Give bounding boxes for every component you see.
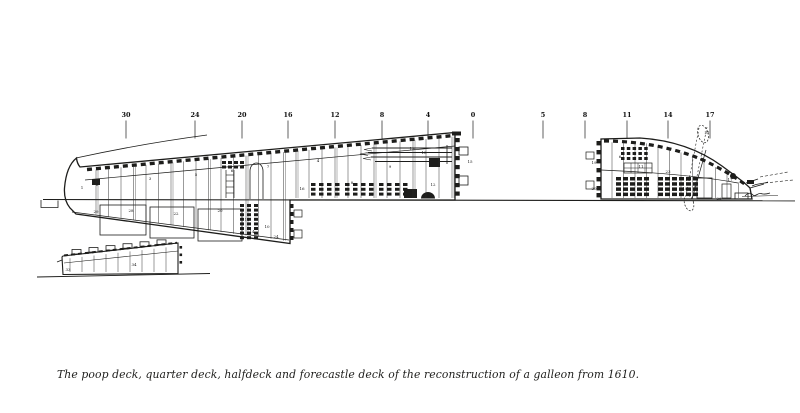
poop-deck-section	[37, 240, 210, 277]
station-label: 5	[541, 111, 546, 119]
galleon-deck-drawing: 302420161284058111417	[0, 0, 800, 413]
grating-cell	[644, 187, 649, 191]
station-label: 24	[190, 111, 200, 119]
grating-cell	[361, 188, 366, 191]
grating-cell	[247, 213, 251, 216]
grating-cell	[665, 193, 670, 197]
grating-cell	[638, 147, 642, 150]
grating-cell	[637, 182, 642, 186]
grating-cell	[335, 183, 340, 186]
beam-end-tooth	[290, 212, 294, 216]
bowsprit-sketch-lines	[760, 172, 793, 183]
grating-cell	[658, 187, 663, 191]
edge-tick	[180, 261, 183, 264]
beam-block	[294, 210, 302, 217]
beam-end-tooth	[456, 183, 460, 187]
grating-cell	[379, 188, 384, 191]
beam-block	[459, 176, 468, 185]
grating-cell	[240, 209, 244, 212]
grating-cell	[254, 227, 258, 230]
beam-block	[294, 230, 302, 238]
part-number-label: 18	[682, 186, 688, 191]
dark-locker	[429, 158, 440, 167]
part-number-label: 23	[665, 169, 671, 174]
grating-cell	[633, 147, 637, 150]
part-number-label: 10	[685, 177, 691, 182]
part-number-label: 6	[619, 154, 622, 159]
edge-cap	[452, 132, 461, 136]
grating-cell	[637, 177, 642, 181]
grating-cell	[616, 187, 621, 191]
beam-end-tooth	[456, 165, 460, 169]
grating-cell	[247, 209, 251, 212]
grating-cell	[353, 188, 358, 191]
grating-cell	[623, 193, 628, 197]
beam-end-tooth	[597, 177, 601, 181]
grating-cell	[311, 188, 316, 191]
grating-cell	[633, 152, 637, 155]
grating-cell	[234, 161, 238, 164]
part-number-label: 14	[249, 229, 255, 234]
part-number-label: 15	[467, 159, 473, 164]
grating-cell	[693, 193, 698, 197]
grating-cell	[403, 193, 408, 196]
grating-cell	[644, 182, 649, 186]
station-label: 11	[622, 111, 631, 119]
grating-cell	[672, 187, 677, 191]
beam-end-tooth	[456, 147, 460, 151]
grating-cell	[403, 188, 408, 191]
part-number-label: 26	[368, 192, 374, 197]
station-label: 0	[471, 111, 476, 119]
forecastle-section	[586, 124, 793, 212]
grating-cell	[403, 183, 408, 186]
beam-end-tooth	[290, 236, 294, 240]
grating-cell	[345, 193, 350, 196]
grating-cell	[379, 183, 384, 186]
grating-cell	[627, 147, 631, 150]
grating-cell	[693, 187, 698, 191]
arched-door	[250, 163, 263, 199]
grating-cell	[228, 161, 232, 164]
grating-cell	[395, 188, 400, 191]
grating-cell	[637, 193, 642, 197]
part-number-label: 2	[96, 182, 99, 187]
station-label: 8	[583, 111, 588, 119]
grating-cell	[658, 193, 663, 197]
grating-cell	[240, 161, 244, 164]
grating-cell	[254, 209, 258, 212]
station-label: 14	[663, 111, 673, 119]
grating-cell	[623, 177, 628, 181]
station-label: 16	[283, 111, 293, 119]
part-number-label: 1	[81, 185, 84, 190]
part-number-label: 4	[317, 158, 320, 163]
part-number-label: 34	[131, 262, 137, 267]
grating-cell	[240, 204, 244, 207]
grating-cell	[644, 193, 649, 197]
grating-cell	[693, 177, 698, 181]
grating-cell	[254, 232, 258, 235]
grating-cell	[621, 157, 625, 160]
grating-cell	[644, 157, 648, 160]
grating-cell	[327, 188, 332, 191]
door	[697, 178, 712, 198]
grating-cell	[672, 182, 677, 186]
station-label: 20	[237, 111, 247, 119]
station-label: 4	[426, 111, 431, 119]
edge-tick	[180, 254, 183, 257]
grating-cell	[240, 236, 244, 239]
grating-cell	[254, 222, 258, 225]
part-number-label: 33	[65, 267, 71, 272]
part-number-label: 29	[93, 209, 99, 214]
grating-cell	[319, 188, 324, 191]
grating-cell	[319, 193, 324, 196]
part-number-label: 26	[716, 196, 722, 201]
grating-cell	[633, 157, 637, 160]
beam-end-tooth	[597, 186, 601, 190]
grating-cell	[638, 157, 642, 160]
grating-cell	[644, 152, 648, 155]
grating-cell	[353, 183, 358, 186]
grating-cell	[240, 218, 244, 221]
beakhead	[730, 172, 793, 188]
beam-end-tooth	[456, 174, 460, 178]
grating-cell	[345, 188, 350, 191]
part-number-label: 22	[173, 211, 179, 216]
cabin-box	[150, 207, 194, 238]
grating-cell	[311, 193, 316, 196]
grating-cell	[319, 183, 324, 186]
grating-cell	[369, 188, 374, 191]
station-label: 30	[121, 111, 131, 119]
beam-block	[586, 152, 594, 159]
artist-signature-mark	[742, 193, 778, 197]
beam-block	[459, 147, 468, 155]
part-number-label: 21	[704, 130, 709, 135]
beam-end-tooth	[290, 204, 294, 208]
grating-cell	[616, 182, 621, 186]
grating-cell	[247, 222, 251, 225]
grating-cell	[665, 187, 670, 191]
part-number-label: 28	[128, 208, 134, 213]
beam-end-tooth	[597, 193, 601, 197]
grating-cell	[311, 183, 316, 186]
part-number-label: 19	[591, 160, 597, 165]
grating-cell	[345, 183, 350, 186]
part-number-label: 8	[351, 180, 354, 185]
part-number-label: 11	[244, 217, 249, 222]
part-number-label: 18	[421, 150, 427, 155]
grating-cell	[637, 187, 642, 191]
part-number-label: 7	[267, 164, 270, 169]
grating-cell	[387, 188, 392, 191]
grating-cell	[621, 152, 625, 155]
part-number-label: 9	[389, 164, 392, 169]
edge-tick	[180, 246, 183, 249]
grating-cell	[254, 218, 258, 221]
grating-cell	[254, 213, 258, 216]
beam-end-tooth	[290, 220, 294, 224]
grating-cell	[630, 187, 635, 191]
station-label: 8	[380, 111, 385, 119]
grating-cell	[616, 177, 621, 181]
grating-cell	[395, 183, 400, 186]
grating-cell	[679, 177, 684, 181]
beam-end-tooth	[456, 156, 460, 160]
grating-cell	[679, 193, 684, 197]
grating-cell	[222, 166, 226, 169]
poop-stern-step	[57, 260, 62, 262]
book-page: 302420161284058111417	[0, 0, 800, 413]
grating-cell	[247, 204, 251, 207]
grating-cell	[240, 232, 244, 235]
part-number-label: 13	[409, 146, 415, 151]
half-round-casing	[421, 192, 435, 198]
part-number-label: 5	[195, 172, 198, 177]
grating-cell	[665, 182, 670, 186]
beam-end-tooth	[597, 159, 601, 163]
part-number-label: 11	[638, 164, 643, 169]
grating-cell	[335, 193, 340, 196]
grating-cell	[686, 193, 691, 197]
grating-cell	[395, 193, 400, 196]
stern-tab	[41, 200, 58, 208]
grating-cell	[369, 183, 374, 186]
grating-cell	[240, 166, 244, 169]
grating-cell	[240, 227, 244, 230]
grating-cell	[672, 177, 677, 181]
grating-cell	[247, 236, 251, 239]
part-number-label: 12	[430, 182, 436, 187]
grating-cell	[327, 193, 332, 196]
part-number-label: 16	[299, 186, 305, 191]
ladder	[226, 170, 234, 198]
grating-cell	[658, 182, 663, 186]
grating-cell	[327, 183, 332, 186]
grating-cell	[361, 193, 366, 196]
poop-outline	[62, 243, 178, 275]
grating-cell	[254, 204, 258, 207]
part-number-label: 6	[231, 168, 234, 173]
part-number-label: 20	[217, 208, 223, 213]
part-number-label: 17	[727, 177, 733, 182]
grating-cell	[638, 152, 642, 155]
station-label: 17	[705, 111, 714, 119]
locker	[722, 184, 731, 198]
poop-stanchions	[72, 240, 166, 254]
grating-cell	[630, 193, 635, 197]
grating-cell	[644, 177, 649, 181]
grating-cell	[627, 157, 631, 160]
grating-cell	[627, 152, 631, 155]
beam-end-tooth	[597, 150, 601, 154]
grating-cell	[387, 193, 392, 196]
grating-cell	[240, 222, 244, 225]
grating-cell	[335, 188, 340, 191]
beam-end-tooth	[597, 141, 601, 145]
part-number-label: 3	[149, 176, 152, 181]
grating-cell	[623, 187, 628, 191]
grating-cell	[693, 182, 698, 186]
grating-cell	[630, 182, 635, 186]
beam-end-tooth	[290, 228, 294, 232]
grating-cell	[623, 182, 628, 186]
grating-cell	[222, 161, 226, 164]
grating-cell	[630, 177, 635, 181]
part-number-label: 20	[591, 186, 597, 191]
grating-cell	[254, 236, 258, 239]
grating-cell	[353, 193, 358, 196]
beam-end-tooth	[597, 168, 601, 172]
beam-end-tooth	[456, 138, 460, 142]
grating-cell	[621, 147, 625, 150]
grating-cell	[672, 193, 677, 197]
part-number-label: 24	[273, 234, 279, 239]
grating-cell	[665, 177, 670, 181]
station-label: 12	[330, 111, 339, 119]
grating-cell	[658, 177, 663, 181]
figure-caption: The poop deck, quarter deck, halfdeck an…	[57, 368, 639, 381]
grating-cell	[644, 147, 648, 150]
grating-cell	[387, 183, 392, 186]
grating-cell	[234, 166, 238, 169]
grating-cell	[361, 183, 366, 186]
bow-step	[735, 193, 748, 199]
grating-cell	[240, 213, 244, 216]
beam-end-tooth	[456, 192, 460, 196]
part-number-label: 10	[264, 224, 270, 229]
poop-rail-line	[76, 135, 207, 158]
grating-cell	[616, 193, 621, 197]
grating-cell	[379, 193, 384, 196]
station-scale: 302420161284058111417	[121, 111, 714, 139]
